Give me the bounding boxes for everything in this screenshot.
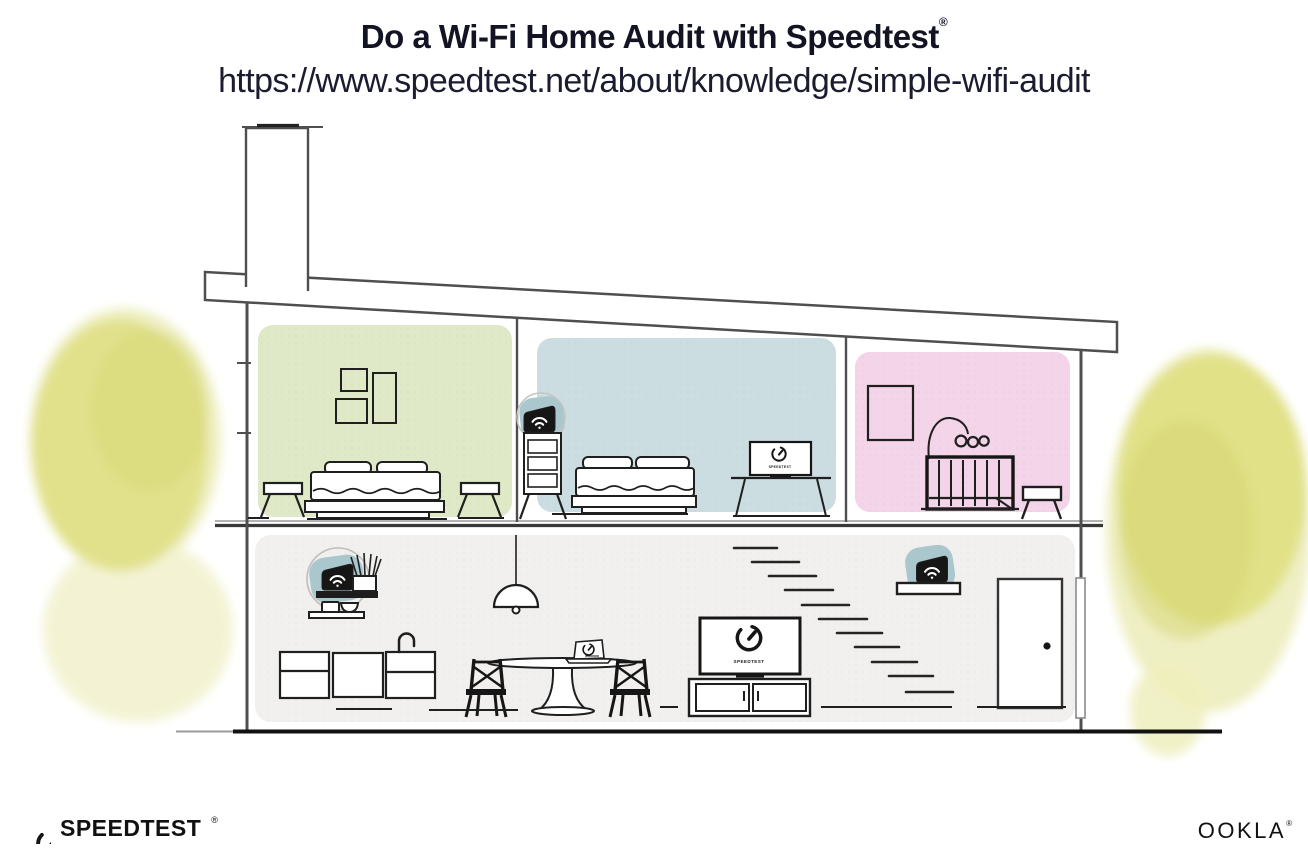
door-knob	[1043, 642, 1050, 649]
ground-line	[233, 730, 1222, 734]
wall-tick-marks	[237, 363, 251, 433]
ookla-logo: OOKLA ®	[1198, 818, 1292, 844]
tree-right	[1106, 348, 1308, 756]
tv-screen-label: SPEEDTEST	[734, 659, 765, 664]
tv-screen-label: SPEEDTEST	[769, 465, 792, 469]
ookla-wordmark: OOKLA	[1198, 818, 1286, 844]
page-title-text: Do a Wi-Fi Home Audit with Speedtest	[361, 18, 939, 55]
cup	[322, 602, 339, 612]
bowl	[341, 603, 358, 612]
tv-stand	[736, 675, 764, 678]
lower-shelf	[309, 612, 364, 618]
speedtest-gauge-icon	[20, 813, 51, 844]
tree-left	[29, 308, 233, 722]
front-door	[998, 579, 1062, 708]
registered-mark: ®	[939, 15, 947, 29]
living-room-tv: SPEEDTEST	[700, 618, 800, 678]
floor-shadow-lines	[552, 514, 830, 516]
page-url: https://www.speedtest.net/about/knowledg…	[0, 59, 1308, 103]
media-console	[689, 679, 810, 716]
chimney	[246, 128, 308, 291]
speedtest-logo: SPEEDTEST ®	[20, 813, 218, 844]
home-cross-section-illustration: SPEEDTEST	[0, 110, 1308, 770]
ookla-registered-mark: ®	[1286, 819, 1292, 828]
speedtest-wordmark: SPEEDTEST	[60, 815, 201, 842]
header: Do a Wi-Fi Home Audit with Speedtest® ht…	[0, 16, 1308, 103]
downspout	[1076, 578, 1085, 718]
speedtest-registered-mark: ®	[211, 815, 218, 825]
upper-shelf	[316, 591, 378, 598]
page-title: Do a Wi-Fi Home Audit with Speedtest®	[0, 16, 1308, 57]
floor-shadow-lines	[248, 518, 504, 519]
tv-screen	[700, 618, 800, 674]
infographic-page: Do a Wi-Fi Home Audit with Speedtest® ht…	[0, 0, 1308, 861]
wall-shelf	[897, 583, 960, 594]
